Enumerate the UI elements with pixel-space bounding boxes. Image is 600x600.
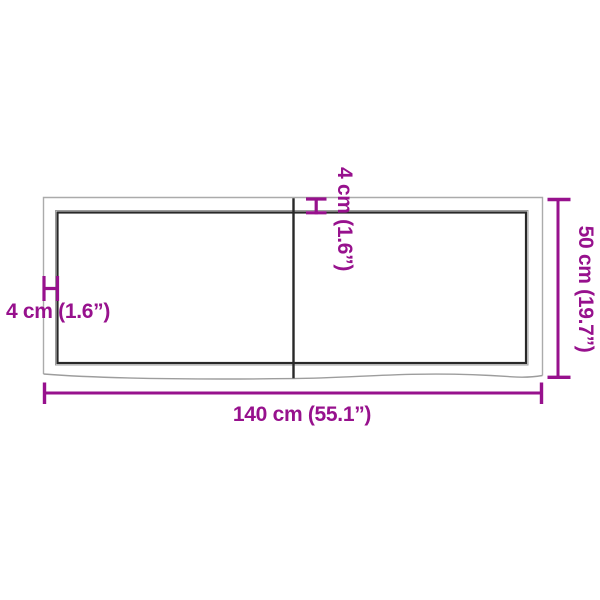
width-dimension-line (45, 383, 542, 405)
height-dimension-label: 50 cm (19.7”) (573, 226, 597, 353)
thickness-dimension-label-top: 4 cm (1.6”) (332, 167, 356, 271)
thickness-dimension-label-left: 4 cm (1.6”) (6, 300, 110, 324)
board-inner-shadow-line (56, 211, 529, 366)
height-dimension-line (548, 200, 571, 378)
thickness-marker-top (306, 198, 327, 215)
thickness-marker-left (43, 276, 60, 301)
board-inner-edge (58, 213, 527, 364)
width-dimension-label: 140 cm (55.1”) (233, 403, 371, 427)
dimension-diagram: 140 cm (55.1”) 50 cm (19.7”) 4 cm (1.6”)… (0, 0, 600, 600)
